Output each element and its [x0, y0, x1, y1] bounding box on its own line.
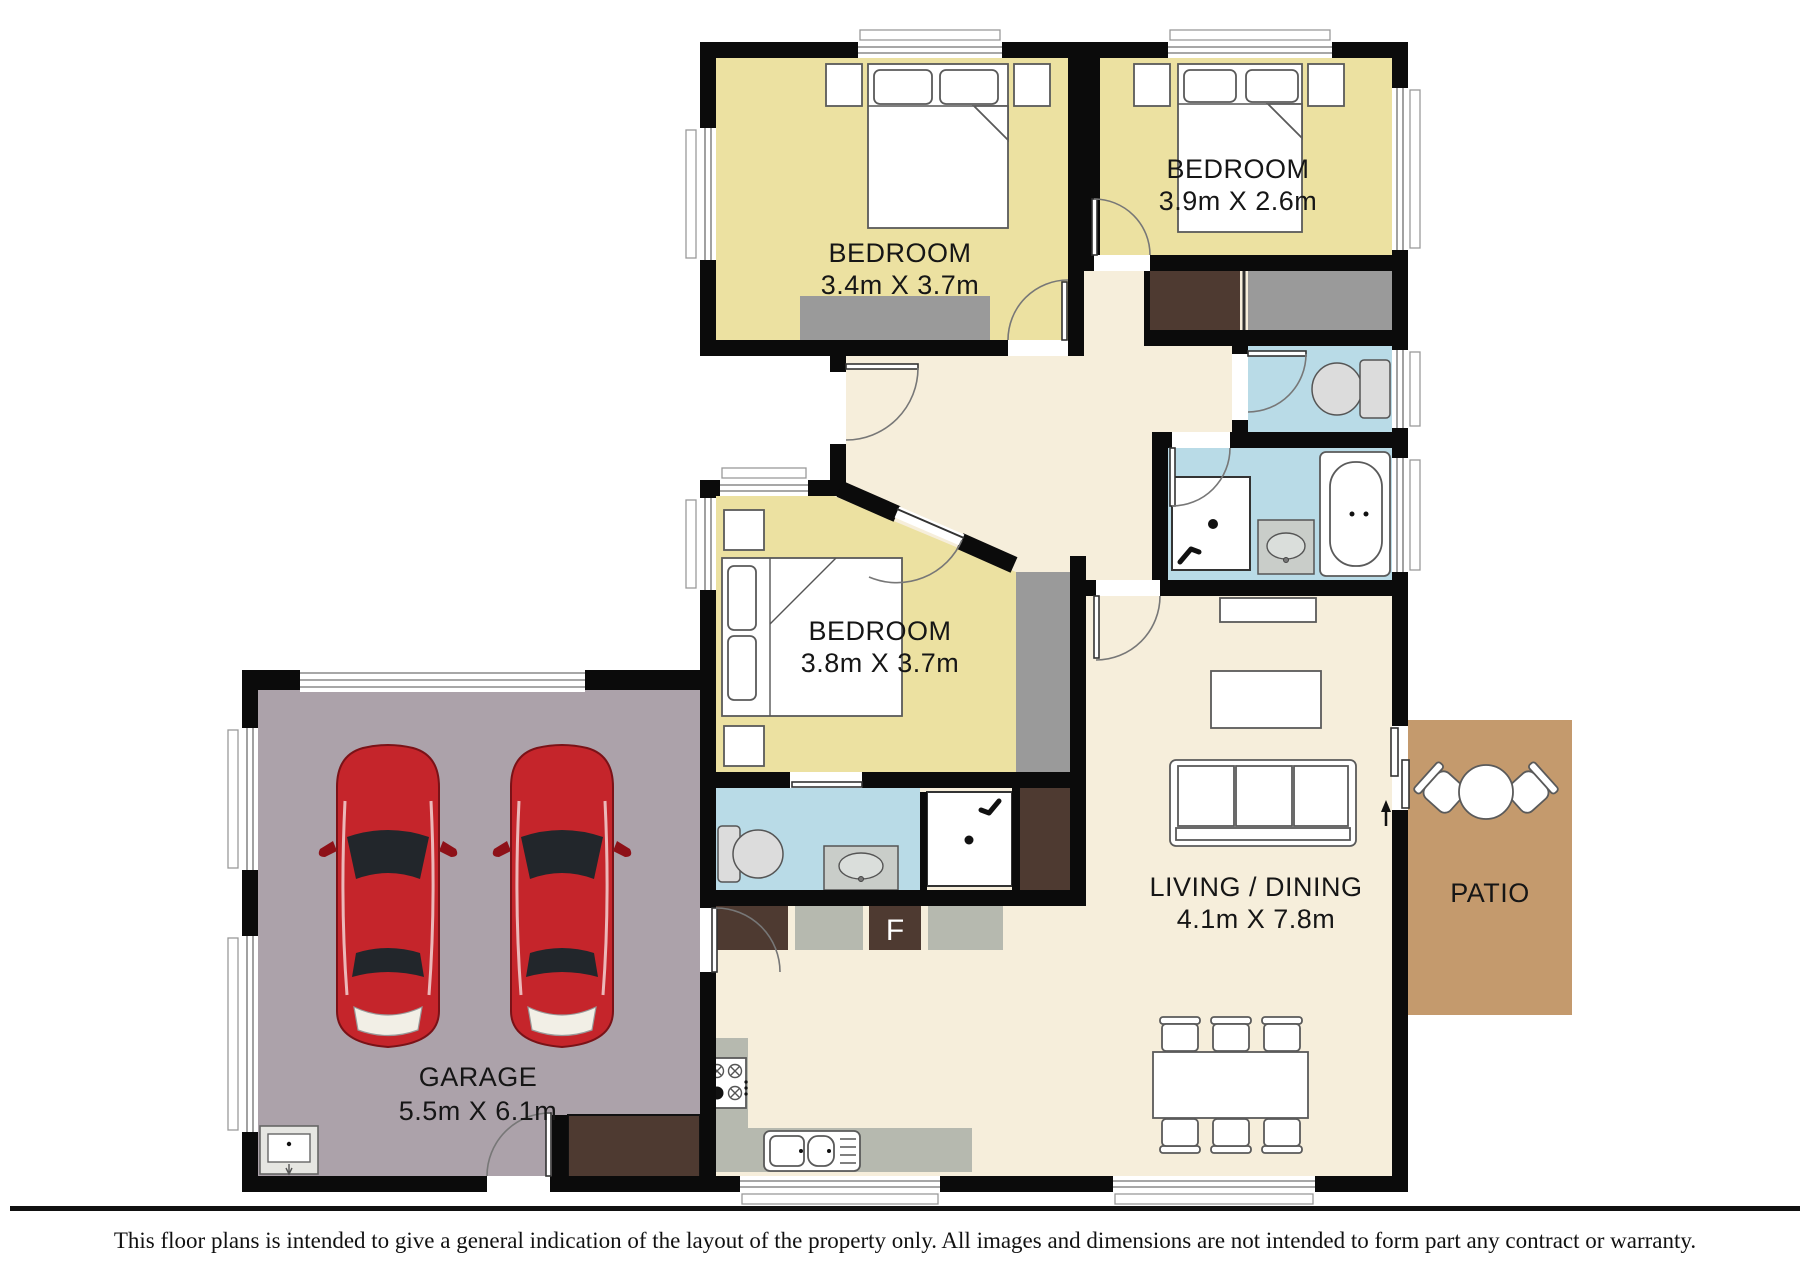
window	[1392, 350, 1420, 428]
nightstand	[1308, 64, 1344, 106]
vanity-bathroom	[1258, 520, 1314, 574]
label-bedroom2: BEDROOM	[1166, 154, 1309, 184]
dining-chair	[1262, 1017, 1302, 1051]
nightstand	[1134, 64, 1170, 106]
dining-chair	[1211, 1017, 1251, 1051]
vanity-ensuite	[824, 846, 898, 890]
closet-ensuite-dark	[1020, 788, 1070, 890]
window	[1113, 1176, 1315, 1204]
dims-living: 4.1m X 7.8m	[1177, 904, 1336, 934]
window	[740, 1176, 940, 1204]
nightstand	[724, 726, 764, 766]
dining-set	[1153, 1017, 1308, 1153]
nightstand	[1014, 64, 1050, 106]
dims-bedroom3: 3.8m X 3.7m	[801, 648, 960, 678]
floorplan-page: BEDROOM 3.4m X 3.7m BEDROOM 3.9m X 2.6m …	[0, 0, 1810, 1280]
patio-table	[1459, 765, 1513, 819]
door-ensuite-slider	[790, 772, 862, 788]
cabinet-gray-2	[928, 906, 1003, 950]
window	[686, 128, 716, 260]
sideboard	[1220, 598, 1316, 622]
patio-floor	[1408, 720, 1572, 1015]
dims-bedroom2: 3.9m X 2.6m	[1159, 186, 1318, 216]
dining-chair	[1211, 1119, 1251, 1153]
disclaimer-text: This floor plans is intended to give a g…	[114, 1228, 1696, 1253]
car	[493, 745, 631, 1047]
car	[319, 745, 457, 1047]
nightstand	[724, 510, 764, 550]
label-living: LIVING / DINING	[1149, 872, 1362, 902]
floorplan-canvas: BEDROOM 3.4m X 3.7m BEDROOM 3.9m X 2.6m …	[0, 0, 1810, 1280]
kitchen-sink-icon	[764, 1131, 860, 1171]
nightstand	[826, 64, 862, 106]
dining-chair	[1262, 1119, 1302, 1153]
bathtub	[1320, 452, 1390, 576]
sofa	[1170, 760, 1356, 846]
footer: This floor plans is intended to give a g…	[10, 1206, 1800, 1253]
label-bedroom3: BEDROOM	[808, 616, 951, 646]
wardrobe-bedroom1	[800, 296, 990, 340]
label-garage: GARAGE	[419, 1062, 538, 1092]
garage-door-opening	[300, 668, 585, 692]
wardrobe-hall-dark	[1150, 271, 1240, 330]
label-patio: PATIO	[1450, 878, 1530, 908]
bed-bedroom1	[868, 64, 1008, 228]
label-bedroom1: BEDROOM	[828, 238, 971, 268]
closet-garage-dark	[568, 1115, 700, 1177]
coffee-table	[1211, 671, 1321, 728]
dining-chair	[1160, 1017, 1200, 1051]
dims-garage: 5.5m X 6.1m	[399, 1096, 558, 1126]
laundry-tub	[260, 1126, 318, 1174]
shower-drain	[965, 836, 974, 845]
window	[1168, 30, 1332, 58]
window	[1392, 458, 1420, 572]
footer-divider	[10, 1206, 1800, 1211]
cabinet-gray-1	[795, 906, 863, 950]
window	[686, 498, 716, 590]
window	[228, 936, 258, 1132]
dims-bedroom1: 3.4m X 3.7m	[821, 270, 980, 300]
toilet-wc	[1312, 360, 1390, 418]
label-fridge: F	[886, 914, 904, 947]
window	[228, 728, 258, 870]
toilet-ensuite	[718, 826, 783, 882]
dining-table	[1153, 1052, 1308, 1118]
wardrobe-hall-gray	[1248, 271, 1392, 330]
wardrobe-bedroom3	[1016, 572, 1070, 772]
window	[858, 30, 1002, 58]
window	[1392, 88, 1420, 250]
dining-chair	[1160, 1119, 1200, 1153]
window	[720, 468, 808, 496]
